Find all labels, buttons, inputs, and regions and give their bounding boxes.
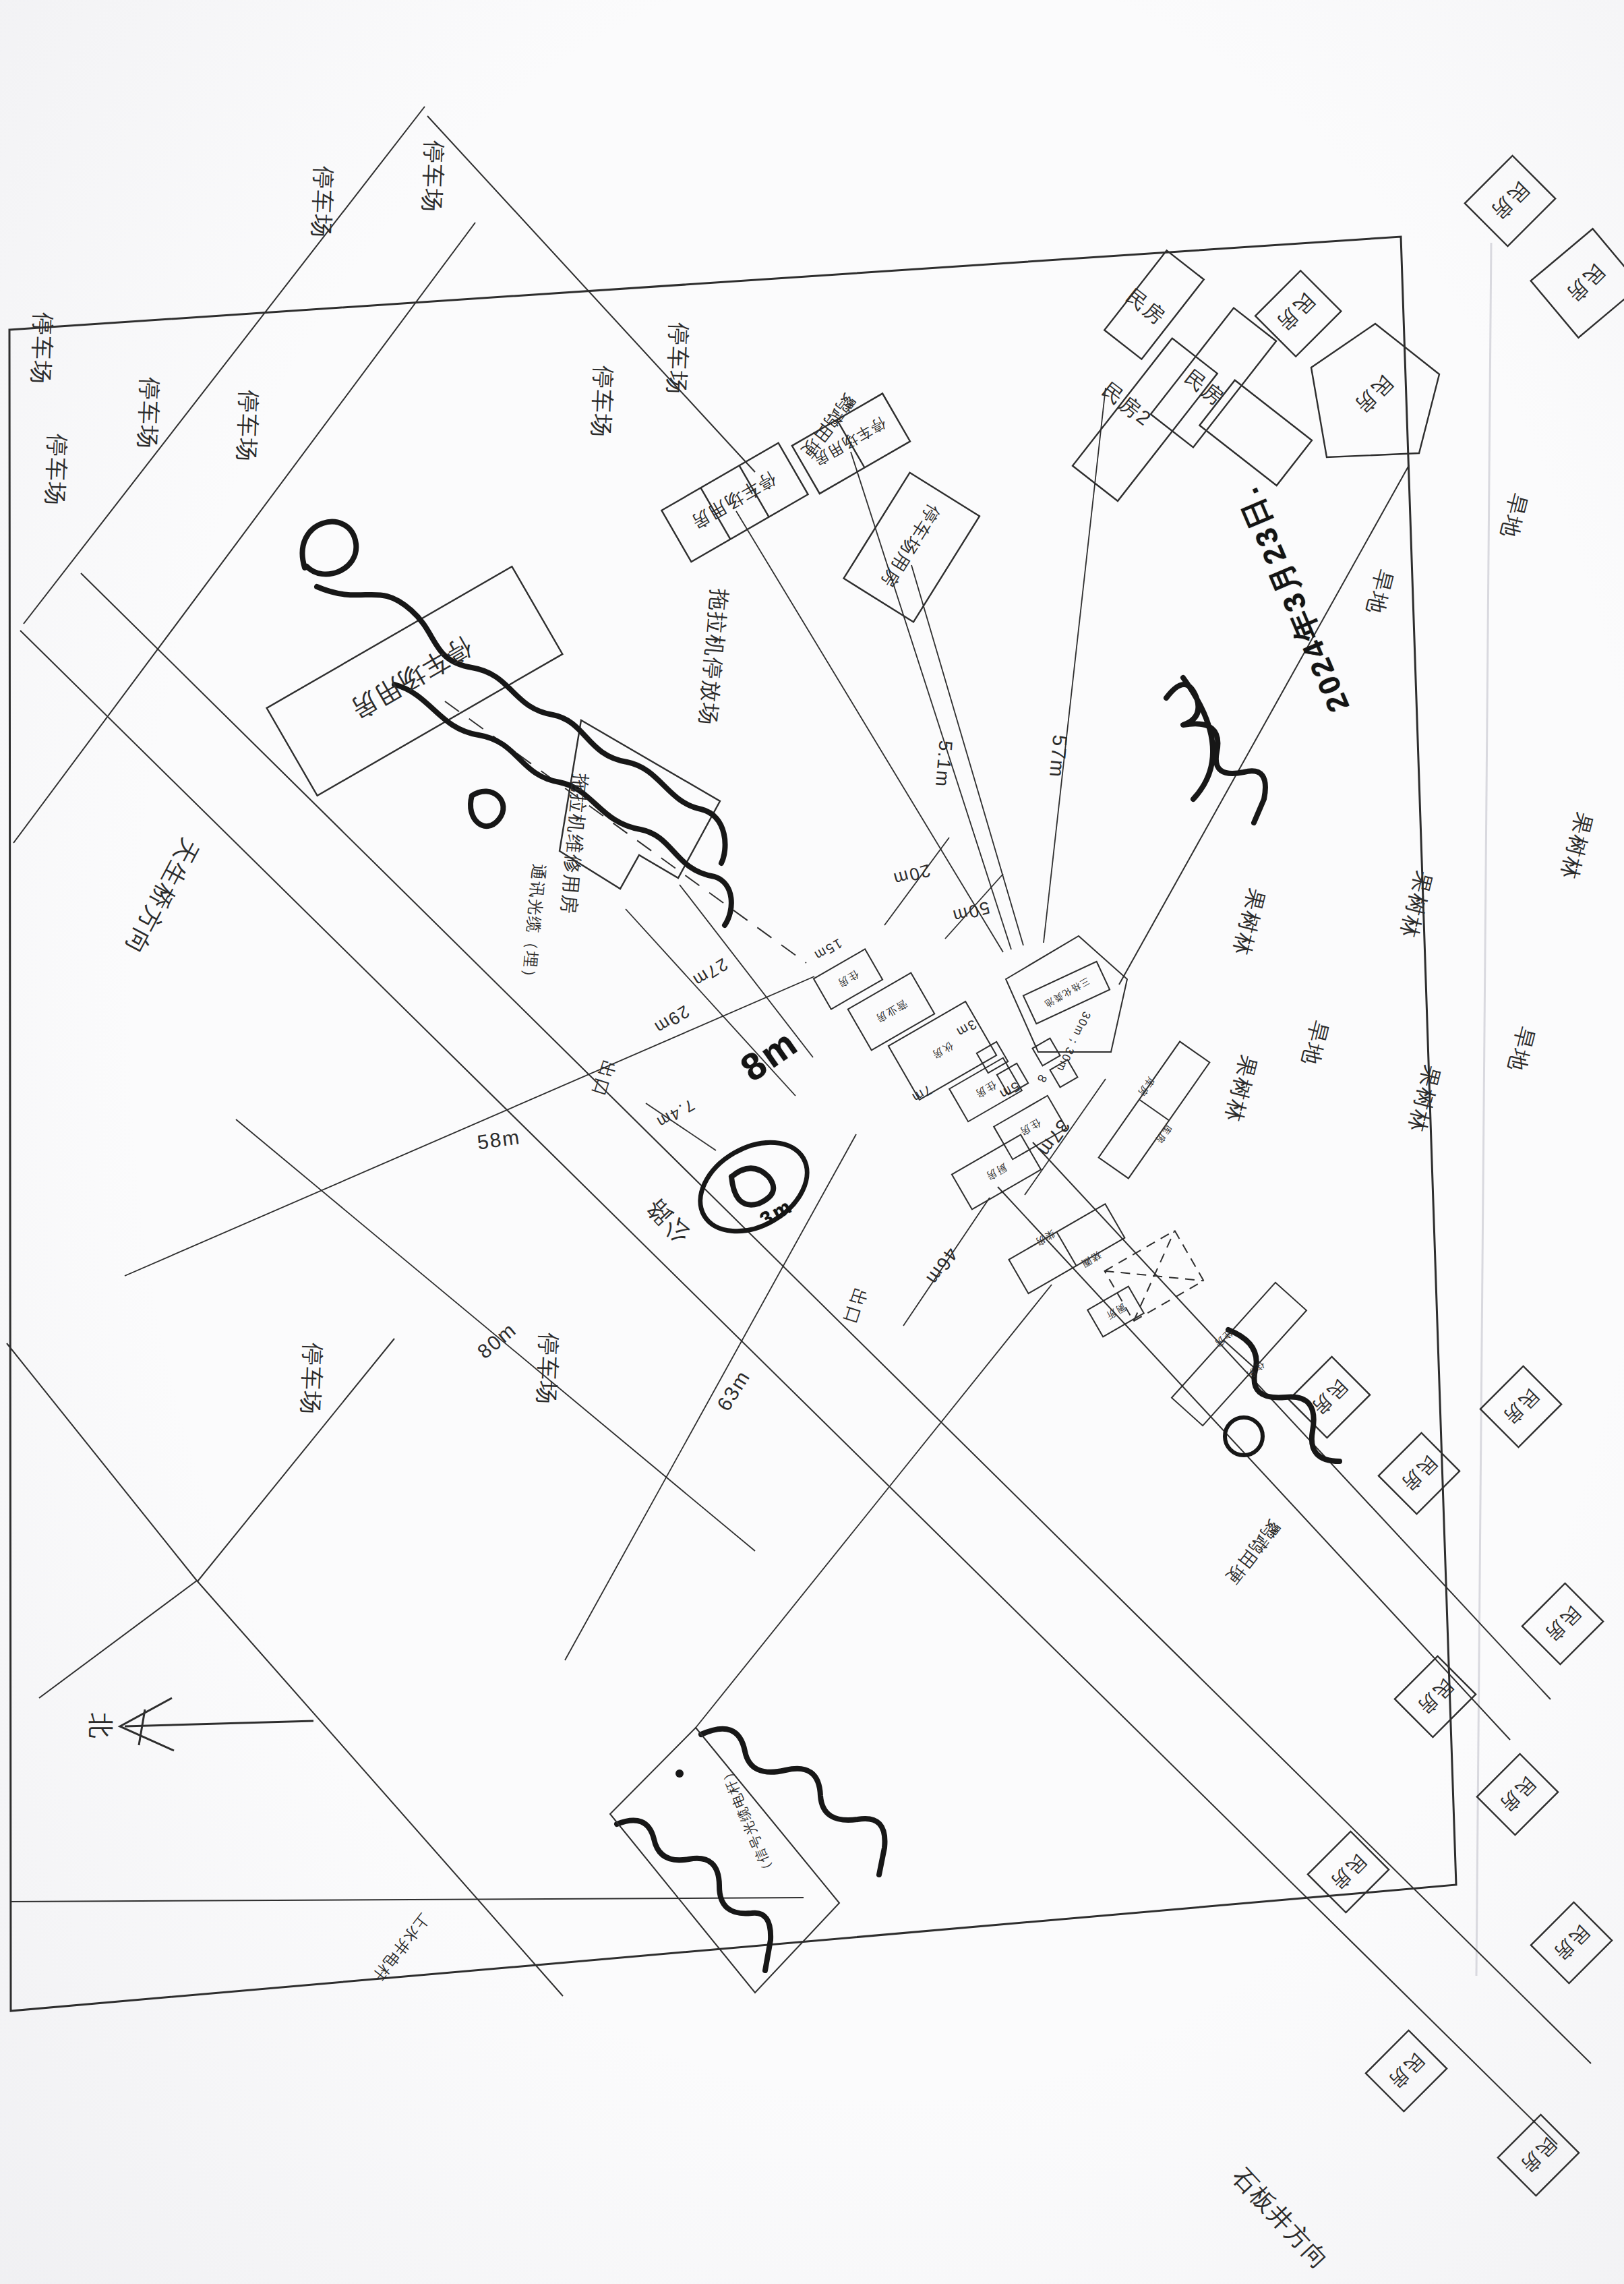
area-parking-5: 停车场 [309,165,335,239]
area-orchard-3: 果树林 [1221,1053,1259,1125]
house-label-minfang2: 民房2 [1099,379,1156,430]
house-label-12: 民房 [1496,1773,1538,1815]
room-label-7: 库房 [1136,1076,1156,1099]
tractor-yard-label: 拖拉机停放场 [696,588,730,727]
house-label-15: 民房 [1385,2049,1427,2092]
hand-date: 2024年3月23日. [1232,481,1355,717]
site-plan-sheet: 停车场停车场停车场停车场停车场停车场停车场停车场停车场停车场果树林果树林果树林果… [0,0,1624,2284]
hand-3m: 3m [756,1195,797,1231]
room-label-8: 库房 [1153,1123,1174,1146]
area-parking-7: 停车场 [664,322,690,395]
parking-house-label-1: 停车场用房 [346,633,476,724]
house-label-4: 民房 [1351,372,1397,417]
area-parking-4: 停车场 [234,389,260,463]
exit-label-2: 出口 [840,1286,869,1328]
parking-house-label-2: 停车场用房 [688,469,779,532]
room-label-2: 营业房 [874,998,909,1024]
room-label-6: 住房 [1017,1117,1042,1138]
room-label-13: 住房 [1244,1359,1267,1381]
dir-shibanjing: 石板井方向 [1228,2163,1333,2275]
north-label: 北 [86,1713,113,1740]
dim-7m: 7m [909,1082,934,1105]
dim-27m: 27m [689,954,731,990]
room-label-1: 住房 [835,969,860,990]
room-label-4: 住房 [973,1080,998,1101]
road-label-gonglu: 公路 [640,1193,694,1248]
dim-58m: 58m [476,1126,522,1153]
area-dryland-4: 旱地 [1504,1024,1537,1074]
exit-label-1: 出口 [589,1058,618,1100]
house-label-16: 民房 [1517,2134,1559,2176]
house-label-7: 民房 [1308,1376,1350,1418]
dir-tianshengqiao: 天生桥方向 [121,834,204,960]
tractor-repair-label: 拖拉机维修用房 [558,773,591,916]
room-label-12: 住房 [1212,1328,1235,1349]
dim-7p4m: 7.4m [653,1096,698,1132]
area-parking-8: 停车场 [589,365,615,438]
dim-29m: 29m [651,1001,692,1037]
dim-5p1m: 5.1m [932,740,955,789]
area-parking-2: 停车场 [42,433,69,506]
area-dryland-3: 旱地 [1298,1018,1331,1068]
house-label-10: 民房 [1541,1602,1584,1645]
area-parking-1: 停车场 [28,312,55,385]
room-label-septic: 三格化粪池 [1042,976,1091,1009]
dim-63m: 63m [713,1366,754,1414]
dim-15m: 15m [811,936,844,964]
dim-57m: 57m [1046,734,1071,780]
room-label-3: 伙房 [930,1041,955,1061]
dim-80m: 80m [473,1318,520,1362]
area-orchard-1: 果树林 [1229,886,1267,958]
cable-label: 通讯光缆（埋） [520,863,548,987]
room-label-10: 猪圈 [1079,1250,1102,1270]
dim-46m: 46m [922,1244,962,1289]
well-pole-label: 上水井电杆 [370,1911,432,1985]
area-orchard-5: 果树林 [1557,810,1595,882]
dim-30m-30m: 30m；30m [1054,1009,1092,1074]
room-label-5: 厨房 [984,1162,1009,1183]
dim-5m: 5m [996,1079,1022,1102]
room-label-11: 厕所 [1104,1302,1127,1322]
dim-3m: 3m [953,1017,979,1040]
house-label-6: 民房 [1563,260,1608,306]
area-orchard-2: 果树林 [1396,869,1435,941]
house-label-5: 民房 [1487,178,1533,224]
dim-20m: 20m [891,860,932,888]
area-parking-10: 停车场 [298,1342,324,1415]
area-parking-6: 停车场 [419,140,446,213]
dim-8: 8 [1034,1073,1049,1086]
house-label-14: 民房 [1550,1921,1592,1964]
label-layer: 停车场停车场停车场停车场停车场停车场停车场停车场停车场停车场果树林果树林果树林果… [0,0,1624,2284]
area-parking-9: 停车场 [534,1332,560,1405]
area-dryland-2: 旱地 [1497,491,1530,541]
area-parking-3: 停车场 [135,376,161,450]
house-label-8: 民房 [1397,1452,1440,1494]
ridge-label-2: 鹦鹉田埂 [1222,1517,1283,1587]
area-dryland-1: 旱地 [1362,567,1395,617]
house-label-3: 民房 [1273,289,1319,335]
house-label-11: 民房 [1414,1675,1456,1718]
dim-50m: 50m [950,898,992,925]
house-label-1: 民房 [1122,285,1170,328]
house-label-9: 民房 [1499,1385,1542,1428]
house-label-2: 民房 [1181,366,1228,409]
hand-8m: 8m [734,1022,806,1088]
house-label-13: 民房 [1327,1850,1369,1893]
pole-note: （信号光缆电杆） [717,1763,777,1878]
area-orchard-4: 果树林 [1404,1063,1443,1135]
room-label-9: 柴房 [1033,1229,1056,1248]
parking-house-label-4: 停车场用房 [877,501,942,591]
